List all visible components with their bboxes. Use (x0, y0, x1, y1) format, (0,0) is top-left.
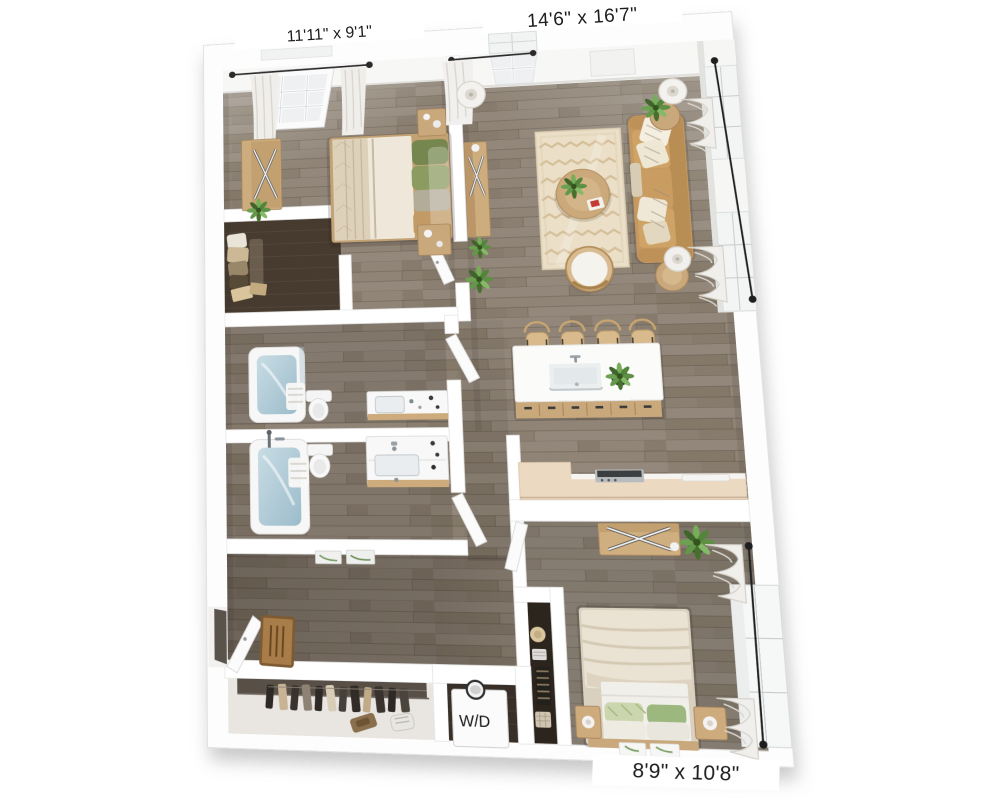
svg-text:W/D: W/D (459, 711, 491, 731)
